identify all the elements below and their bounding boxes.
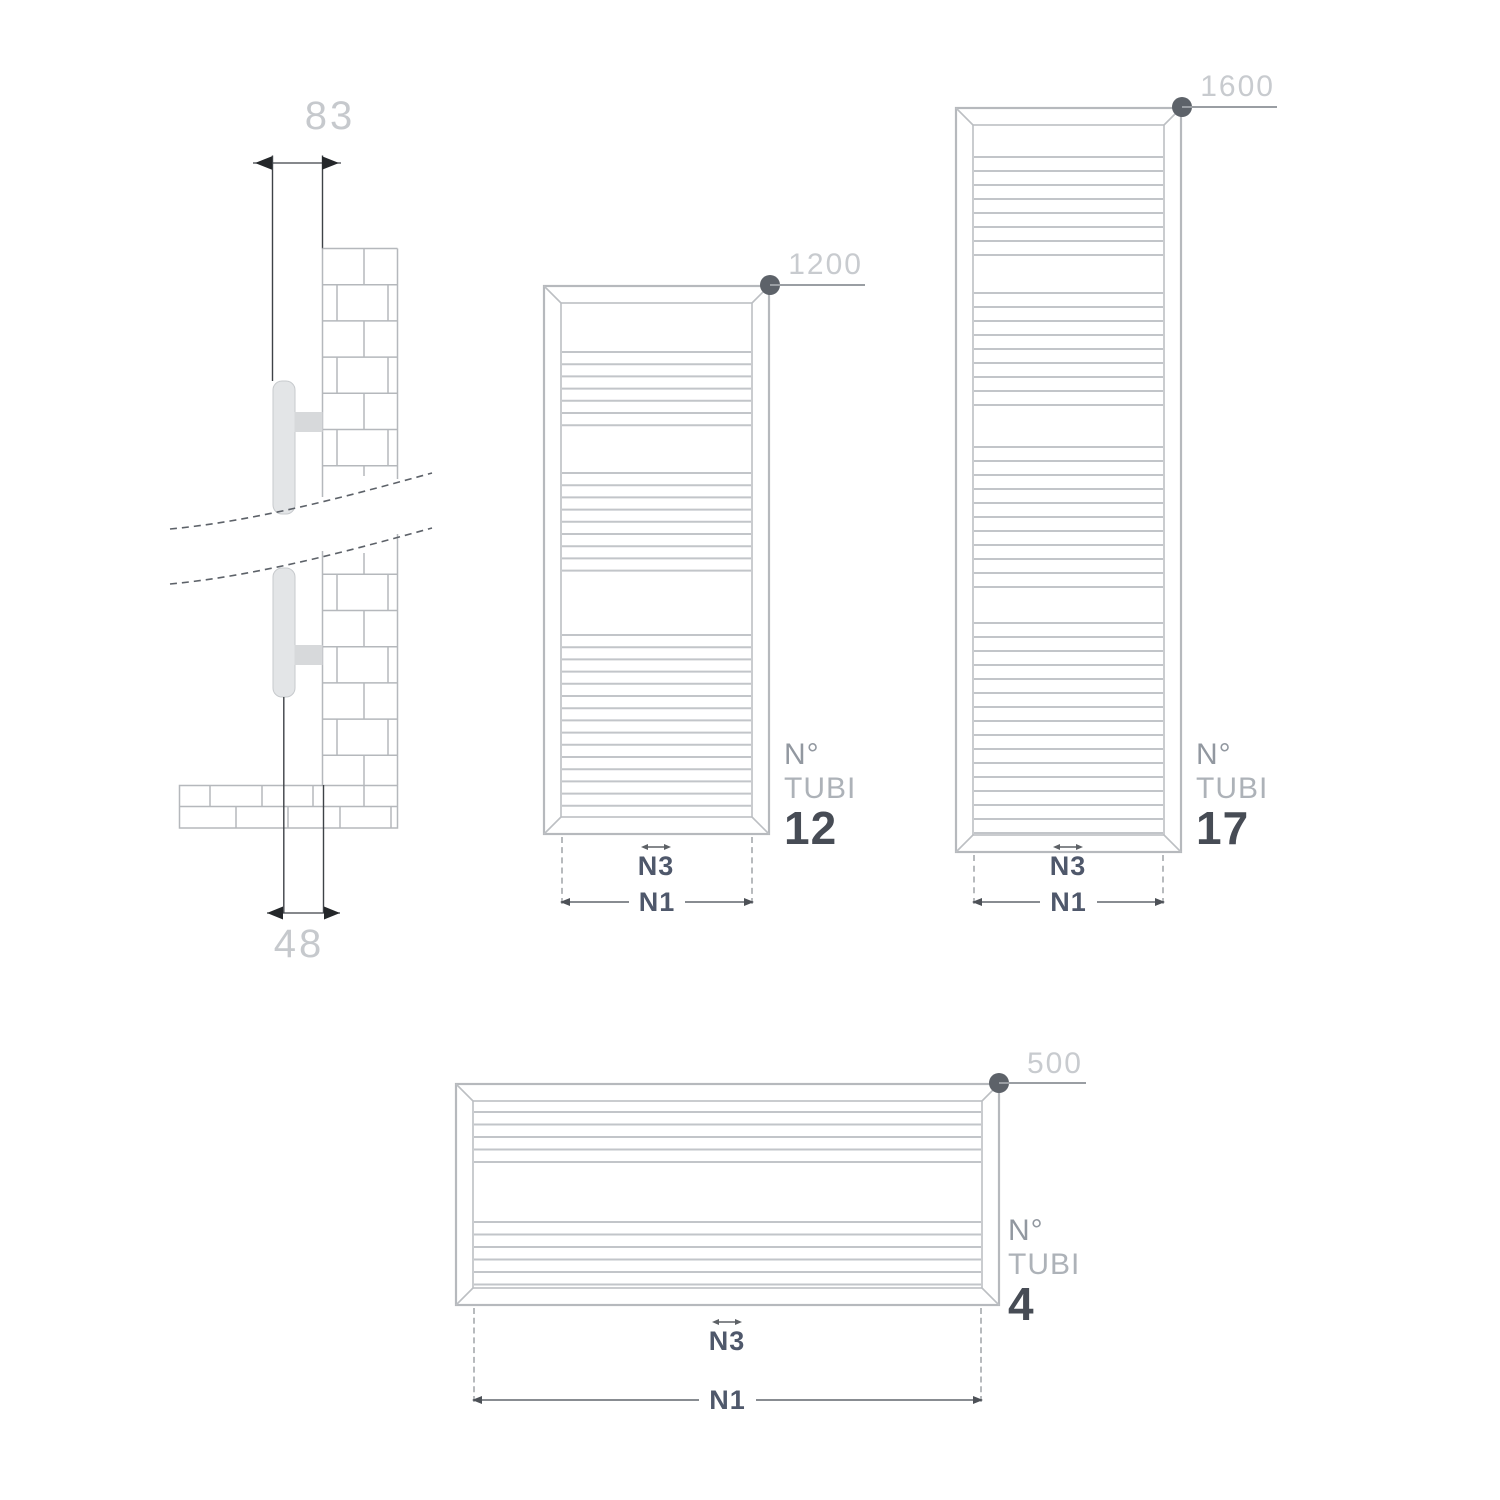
break-line-lower xyxy=(170,528,432,584)
brick-wall xyxy=(323,249,398,786)
side-depth-dimension-label: 83 xyxy=(290,96,370,136)
n1-label: N1 xyxy=(973,887,1164,922)
tubi-no-symbol: N° xyxy=(1008,1214,1080,1248)
height-label-1600: 1600 xyxy=(1180,72,1275,102)
height-dim-leader-1200 xyxy=(770,284,865,286)
tubi-count: 4 xyxy=(1008,1282,1080,1326)
n1-dimension-1200: N1 xyxy=(561,837,753,904)
radiator-technical-drawing: 83 48 1200 N° TUBI 12 N3 N1 xyxy=(0,0,1500,1500)
tubi-no-symbol: N° xyxy=(784,738,856,772)
tubi-word: TUBI xyxy=(1196,772,1268,806)
n1-dimension-500: N1 xyxy=(473,1308,982,1402)
radiator-profile-upper xyxy=(273,381,295,514)
floor-slab xyxy=(180,786,398,829)
radiator-profile-lower xyxy=(273,568,295,697)
break-line-upper xyxy=(170,473,432,529)
tubi-annotation-1600: N° TUBI 17 xyxy=(1196,738,1268,850)
side-axis-dimension-label: 48 xyxy=(259,924,339,964)
height-dim-leader-500 xyxy=(999,1082,1086,1084)
height-dim-leader-1600 xyxy=(1182,106,1277,108)
wall-bracket-top xyxy=(295,412,323,432)
axis-dim-right-arrow xyxy=(324,907,340,920)
radiator-outer-frame xyxy=(956,108,1181,852)
n1-label: N1 xyxy=(561,887,753,922)
n1-dimension-1600: N1 xyxy=(973,855,1164,904)
radiator-outer-frame xyxy=(544,286,769,834)
axis-dim-left-arrow xyxy=(267,907,283,920)
tubi-count: 17 xyxy=(1196,806,1268,850)
radiator-500-front-view xyxy=(455,1083,1000,1306)
tubi-no-symbol: N° xyxy=(1196,738,1268,772)
radiator-1600-front-view xyxy=(955,107,1182,853)
height-label-1200: 1200 xyxy=(768,250,863,280)
wall-brick-pattern xyxy=(323,249,398,786)
tubi-word: TUBI xyxy=(1008,1248,1080,1282)
depth-dim-left-arrow xyxy=(255,156,272,170)
n1-label: N1 xyxy=(473,1385,982,1420)
radiator-1200-front-view xyxy=(543,285,770,835)
tubi-word: TUBI xyxy=(784,772,856,806)
tubi-count: 12 xyxy=(784,806,856,850)
height-label-500: 500 xyxy=(998,1049,1083,1079)
depth-dim-right-arrow xyxy=(322,156,339,170)
side-view-drawing xyxy=(150,80,490,980)
tubi-annotation-500: N° TUBI 4 xyxy=(1008,1214,1080,1326)
wall-bracket-bottom xyxy=(295,645,323,665)
tubi-annotation-1200: N° TUBI 12 xyxy=(784,738,856,850)
